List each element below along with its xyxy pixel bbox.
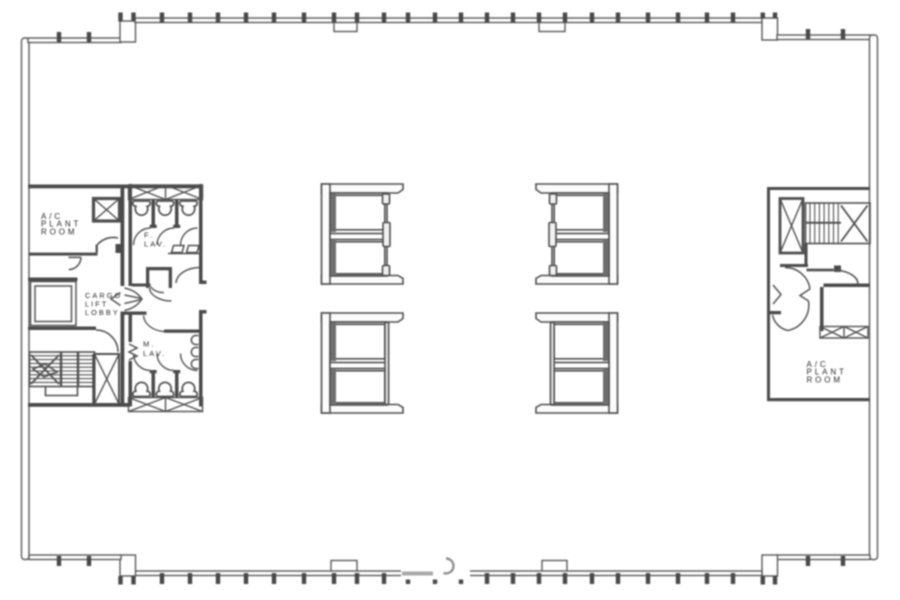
svg-text:LAV.: LAV. <box>144 239 167 248</box>
svg-text:M.: M. <box>143 340 156 349</box>
svg-text:LOBBY: LOBBY <box>85 308 120 317</box>
svg-text:ROOM: ROOM <box>807 375 844 384</box>
svg-text:ROOM: ROOM <box>41 227 78 236</box>
svg-text:LAV.: LAV. <box>143 349 166 358</box>
svg-text:F.: F. <box>144 231 154 240</box>
